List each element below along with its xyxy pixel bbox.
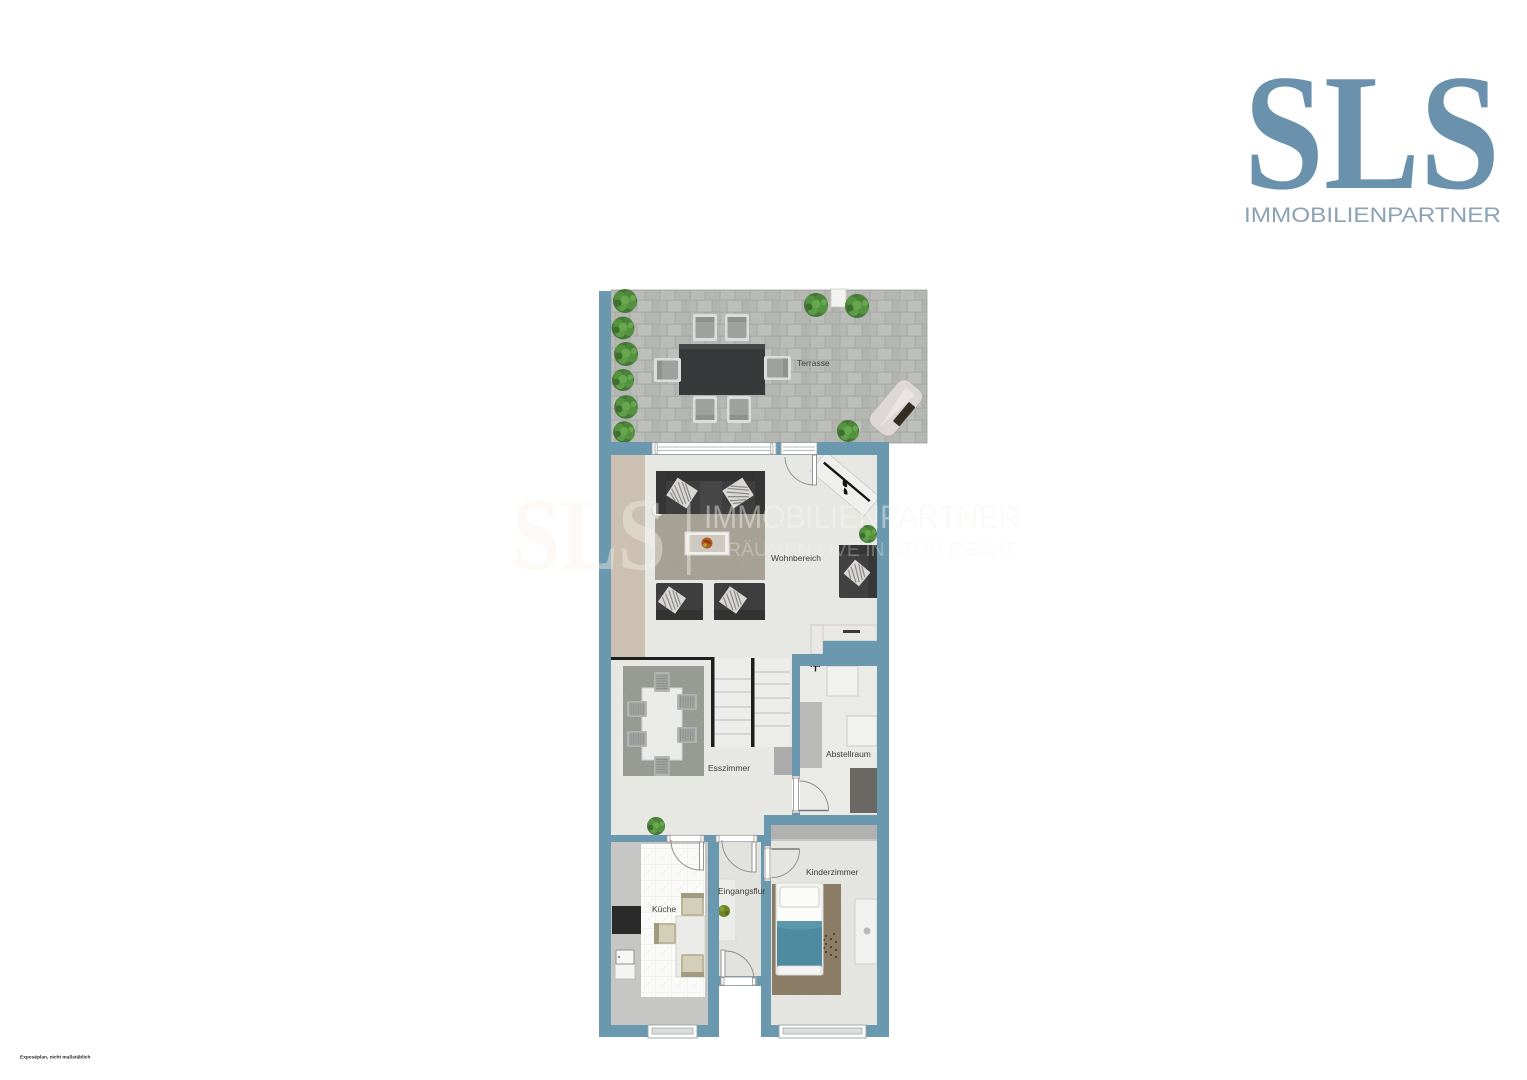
svg-text:IMMOBILIENPARTNER: IMMOBILIENPARTNER xyxy=(704,499,1020,535)
svg-text:Küche: Küche xyxy=(652,904,676,914)
svg-text:SLS: SLS xyxy=(512,478,666,592)
svg-text:Kinderzimmer: Kinderzimmer xyxy=(806,867,859,877)
svg-text:Esszimmer: Esszimmer xyxy=(708,763,750,773)
svg-text:RÄUMEN·LIVE IN STOR RECHT: RÄUMEN·LIVE IN STOR RECHT xyxy=(727,540,1016,561)
svg-text:Eingangsflur: Eingangsflur xyxy=(718,886,765,896)
svg-text:IMMOBILIENPARTNER: IMMOBILIENPARTNER xyxy=(1244,203,1501,227)
svg-text:Terrasse: Terrasse xyxy=(797,358,830,368)
svg-text:Abstellraum: Abstellraum xyxy=(826,749,871,759)
svg-text:Exposéplan, nicht maßstäblich: Exposéplan, nicht maßstäblich xyxy=(20,1055,90,1061)
svg-text:SLS: SLS xyxy=(1244,40,1500,224)
